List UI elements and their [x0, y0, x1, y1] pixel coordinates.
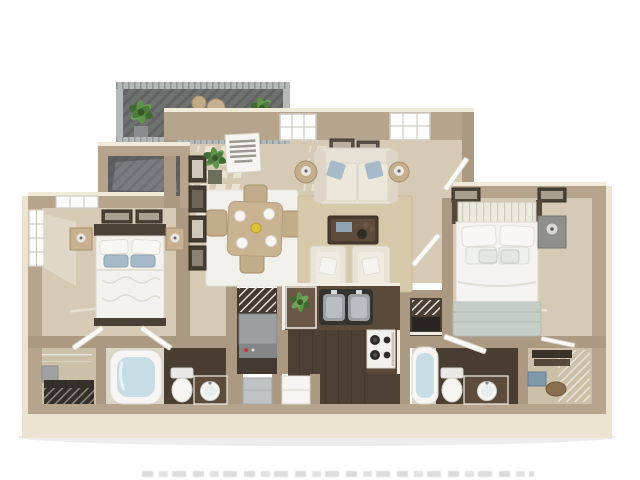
floor-plan-image	[0, 0, 640, 480]
wire-shelf	[42, 361, 92, 366]
faucet-icon	[485, 381, 488, 384]
linen-items	[412, 317, 440, 331]
vanity-2	[464, 376, 508, 404]
hallway-floor	[186, 283, 226, 336]
faucet-icon	[208, 381, 211, 384]
accent-pillow	[131, 255, 155, 267]
window-bedroom1-top	[56, 196, 98, 208]
dial-icon	[252, 349, 255, 352]
linen-shelf-trim	[410, 332, 442, 335]
lamp-icon	[550, 227, 554, 231]
place-setting-3	[237, 238, 248, 249]
bed-2	[452, 200, 542, 336]
place-setting-1	[235, 211, 246, 222]
pantry-wire-shelves	[239, 286, 276, 312]
window-living-left	[280, 114, 316, 140]
linen-wire-shelf	[412, 300, 440, 315]
decor-bowl	[357, 229, 367, 239]
outer-wall-face-bottom	[24, 414, 610, 438]
shelf-items-dark	[532, 350, 572, 358]
dining-chair-top	[244, 185, 267, 204]
footboard	[94, 318, 166, 326]
bed-1	[94, 224, 166, 326]
appliance-gray	[243, 378, 272, 404]
accent-pillow	[104, 255, 128, 267]
pillow	[132, 239, 161, 254]
chair-pillow	[362, 257, 381, 276]
dining-chair-left	[206, 210, 227, 236]
nightstand-2	[538, 216, 566, 248]
sage-blanket	[453, 302, 541, 336]
vanity-1	[194, 376, 227, 404]
wall-sign	[225, 133, 261, 173]
storage-box	[42, 366, 58, 382]
faucet-icon	[356, 290, 362, 294]
bathtub-1	[110, 350, 162, 404]
lamp-icon	[80, 237, 83, 240]
decor-item-1	[363, 222, 369, 228]
range	[367, 330, 395, 368]
coffee-table	[328, 216, 378, 244]
toilet-2	[441, 368, 463, 402]
balcony-balusters	[116, 82, 290, 89]
bistro-chair-1	[192, 96, 206, 110]
lamp-icon	[174, 237, 177, 240]
lamp-icon	[397, 169, 400, 172]
window-bedroom1-side	[29, 210, 44, 266]
counter-trim-left	[282, 283, 285, 330]
place-setting-2	[264, 209, 275, 220]
pillow	[461, 225, 496, 247]
basket	[546, 382, 566, 396]
faucet-icon	[331, 290, 337, 294]
pillow	[499, 225, 534, 247]
nightstand-1-right	[166, 228, 184, 250]
headboard-post	[452, 200, 458, 224]
indicator-light-icon	[244, 348, 248, 352]
side-table-left	[295, 161, 317, 183]
shelf-items	[534, 359, 570, 366]
outer-wall-face-right	[606, 186, 612, 438]
toilet-1	[171, 368, 193, 402]
chair-pillow	[319, 257, 338, 276]
balcony-rail-left	[116, 82, 123, 144]
double-sink	[319, 289, 373, 325]
cropped-disclaimer-text	[142, 471, 534, 477]
knit-pillow	[479, 250, 497, 263]
laundry-nook	[239, 286, 277, 404]
wire-shelf	[42, 351, 92, 356]
sofa	[314, 148, 398, 204]
blue-tote	[528, 372, 546, 386]
nightstand-1-left	[70, 228, 92, 250]
decor-box	[336, 222, 352, 232]
picture-frames-bed1	[102, 210, 162, 223]
centerpiece	[251, 223, 261, 233]
side-table-right	[389, 162, 409, 182]
counter-trim-top	[282, 283, 400, 286]
counter-trim-right	[397, 330, 400, 374]
headboard	[94, 224, 166, 236]
floor-plan-svg	[0, 0, 640, 480]
knit-pillow	[501, 250, 519, 263]
outer-wall-face-left	[22, 196, 28, 438]
bathtub-2	[412, 347, 438, 404]
window-living-right	[390, 113, 430, 140]
decor-item-2	[370, 227, 375, 232]
pillow	[100, 239, 129, 254]
washer-unit	[239, 314, 277, 358]
shoe-rack	[44, 388, 94, 404]
range-controls	[392, 332, 395, 366]
place-setting-4	[266, 236, 277, 247]
linen-closet	[410, 300, 442, 335]
lamp-icon	[304, 169, 307, 172]
